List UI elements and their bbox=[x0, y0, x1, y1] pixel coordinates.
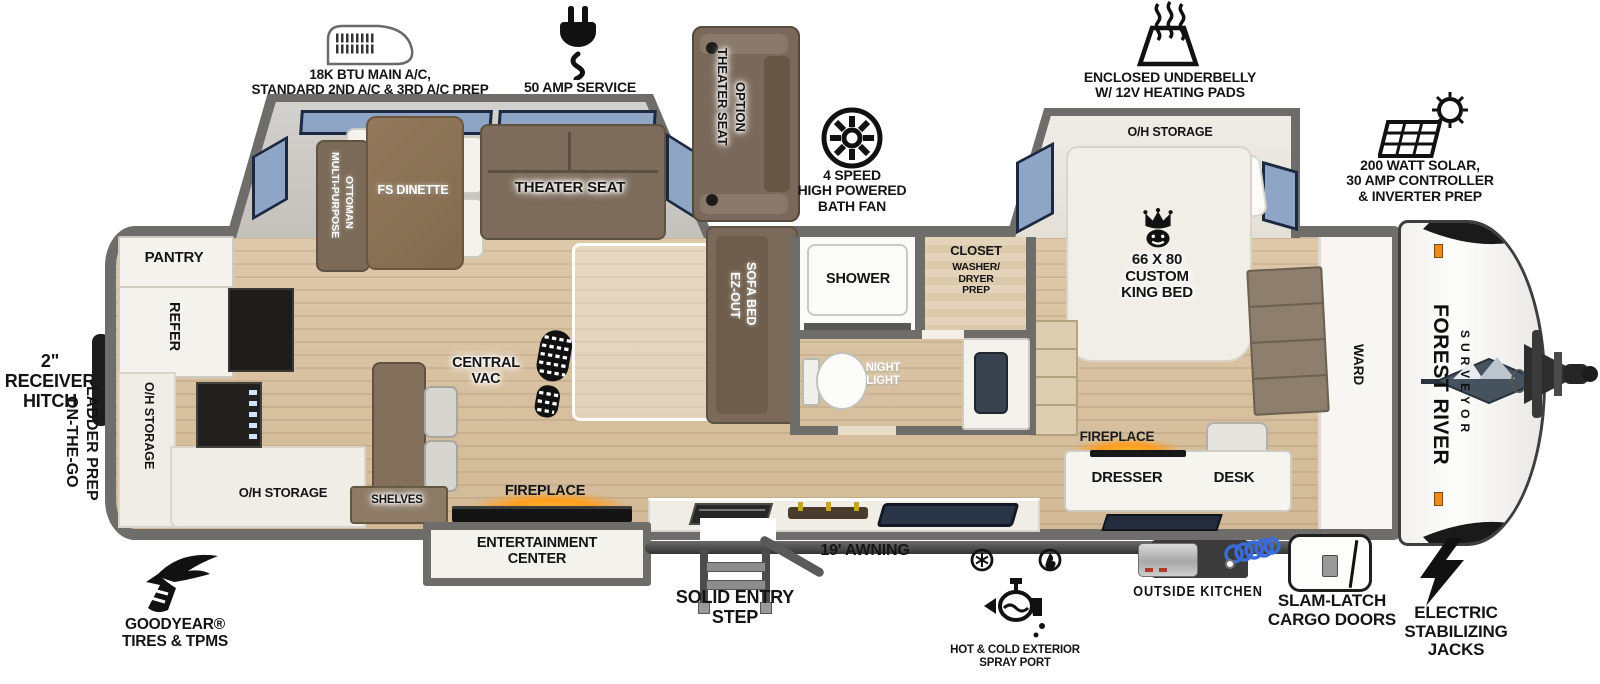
entry-step-label: SOLID ENTRY STEP bbox=[650, 588, 820, 628]
island-chair-1 bbox=[424, 386, 458, 438]
lightning-bolt-icon bbox=[1420, 538, 1468, 606]
king-bed-label: 66 X 80 CUSTOM KING BED bbox=[1087, 252, 1227, 302]
shower-door-track bbox=[804, 323, 911, 330]
theater-option-label-line1: THEATER SEAT bbox=[715, 48, 730, 146]
bed-step-line bbox=[1032, 348, 1076, 350]
goodyear-wingfoot-icon bbox=[128, 548, 224, 618]
vanity-sink bbox=[974, 352, 1008, 414]
stab-jacks-label: ELECTRIC STABILIZING JACKS bbox=[1386, 604, 1526, 660]
central-vac-label: CENTRAL VAC bbox=[436, 356, 536, 388]
knob bbox=[826, 502, 831, 511]
theater-seat-label: THEATER SEAT bbox=[500, 180, 640, 197]
ward-label: WARD bbox=[1351, 344, 1366, 385]
bed-step-line bbox=[1032, 376, 1076, 378]
shower-label: SHOWER bbox=[802, 272, 914, 288]
outside-kitchen-label: OUTSIDE KITCHEN bbox=[1130, 584, 1266, 601]
underbelly-label: ENCLOSED UNDERBELLY W/ 12V HEATING PADS bbox=[1060, 70, 1280, 101]
spray-port-icon bbox=[968, 548, 1064, 642]
bath-door-gap bbox=[922, 330, 964, 339]
ac-unit-label: 18K BTU MAIN A/C, STANDARD 2ND A/C & 3RD… bbox=[230, 68, 510, 98]
amp-service-label: 50 AMP SERVICE bbox=[520, 80, 640, 95]
spray-port-label: HOT & COLD EXTERIOR SPRAY PORT bbox=[940, 644, 1090, 669]
marker-light-top bbox=[1434, 244, 1443, 258]
island-chair-2 bbox=[424, 440, 458, 492]
sofa-cushion bbox=[716, 236, 768, 414]
sofa-bed-footprint bbox=[572, 243, 718, 421]
solar-panel-icon bbox=[1378, 90, 1470, 162]
theater-seat-seam bbox=[488, 170, 658, 173]
bedroom-fireplace-label: FIREPLACE bbox=[1062, 430, 1172, 445]
sofa-bed-label-line2: SOFA BED bbox=[744, 262, 758, 325]
closet-sub-label: WASHER/ DRYER PREP bbox=[927, 262, 1025, 297]
night-light-label: NIGHT LIGHT bbox=[848, 362, 918, 387]
burner-knobs bbox=[249, 390, 257, 440]
closet-label: CLOSET bbox=[927, 244, 1025, 258]
living-fireplace-insert bbox=[452, 506, 632, 522]
heating-pads-icon bbox=[1126, 0, 1210, 68]
griddle-knob bbox=[1159, 568, 1167, 572]
knob bbox=[854, 502, 859, 511]
outside-kitchen-window bbox=[1101, 514, 1223, 531]
bedroom-fireplace-insert bbox=[1090, 450, 1186, 457]
bedroom-slide-window-right bbox=[1262, 161, 1298, 231]
galley-sink bbox=[877, 503, 1020, 527]
ladder-prep-label-line1: ON-THE-GO bbox=[62, 396, 80, 488]
knob bbox=[798, 502, 803, 511]
goodyear-label: GOODYEAR® TIRES & TPMS bbox=[100, 616, 250, 650]
refer-label: REFER bbox=[166, 302, 182, 351]
oh-storage-bedroom-label: O/H STORAGE bbox=[1110, 126, 1230, 140]
solar-label: 200 WATT SOLAR, 30 AMP CONTROLLER & INVE… bbox=[1330, 158, 1510, 204]
wardrobe-slat bbox=[1252, 338, 1324, 344]
sofa-bed-label-line1: EZ-OUT bbox=[728, 272, 742, 319]
bath-fan-label: 4 SPEED HIGH POWERED BATH FAN bbox=[780, 168, 924, 214]
bath-fan-icon bbox=[820, 106, 884, 170]
theater-seat-divider bbox=[568, 132, 571, 170]
cargo-door-latch bbox=[1322, 555, 1338, 577]
hitch-coupler bbox=[1524, 328, 1600, 420]
power-plug-icon bbox=[556, 6, 600, 80]
brand-name-label: FOREST RIVER bbox=[1428, 304, 1452, 465]
outside-kitchen-hose bbox=[1222, 536, 1286, 578]
couch-foot-bottom bbox=[706, 194, 718, 206]
island-table bbox=[372, 362, 426, 496]
wardrobe-slat bbox=[1250, 302, 1322, 308]
desk-label: DESK bbox=[1192, 470, 1276, 487]
ladder-prep-label-line2: LADDER PREP bbox=[82, 386, 100, 501]
griddle-knob bbox=[1145, 568, 1153, 572]
wardrobe-slat bbox=[1254, 374, 1326, 380]
shelves-label: SHELVES bbox=[352, 494, 442, 507]
ottoman-label-line2: OTTOMAN bbox=[343, 176, 355, 229]
dresser-label: DRESSER bbox=[1072, 470, 1182, 487]
dinette-label: FS DINETTE bbox=[366, 184, 460, 198]
awning-label: 19' AWNING bbox=[800, 542, 930, 560]
marker-light-bottom bbox=[1434, 492, 1443, 506]
entertainment-label: ENTERTAINMENT CENTER bbox=[433, 536, 641, 568]
oh-storage-rear-wall-label: O/H STORAGE bbox=[142, 382, 156, 469]
outside-kitchen-griddle bbox=[1138, 543, 1198, 577]
crown-icon bbox=[1140, 208, 1176, 250]
bath-wall-mid bbox=[915, 237, 925, 335]
front-cap-graphics bbox=[1401, 223, 1543, 543]
bath-entry-gap bbox=[838, 426, 896, 435]
ac-unit-icon bbox=[322, 18, 418, 72]
cargo-door bbox=[1288, 534, 1372, 592]
bed-step-line bbox=[1032, 404, 1076, 406]
bed-steps bbox=[1030, 320, 1078, 436]
step-tread-1 bbox=[706, 562, 766, 572]
pantry-label: PANTRY bbox=[120, 250, 228, 267]
bath-wall-left bbox=[790, 237, 800, 435]
galley-knob-rail bbox=[788, 507, 868, 519]
wardrobe bbox=[1246, 266, 1330, 416]
cooktop bbox=[196, 382, 262, 448]
theater-option-label-line2: OPTION bbox=[733, 82, 748, 132]
oh-storage-rear-counter-label: O/H STORAGE bbox=[208, 486, 358, 500]
living-fireplace-label: FIREPLACE bbox=[460, 484, 630, 500]
refrigerator-face bbox=[228, 288, 294, 372]
brand-model-label: SURVEYOR bbox=[1458, 330, 1472, 437]
cooktop-grate bbox=[699, 509, 766, 511]
ottoman-label-line1: MULTI-PURPOSE bbox=[329, 152, 341, 238]
floorplan-diagram: MULTI-PURPOSE OTTOMAN FS DINETTE THEATER… bbox=[0, 0, 1600, 684]
